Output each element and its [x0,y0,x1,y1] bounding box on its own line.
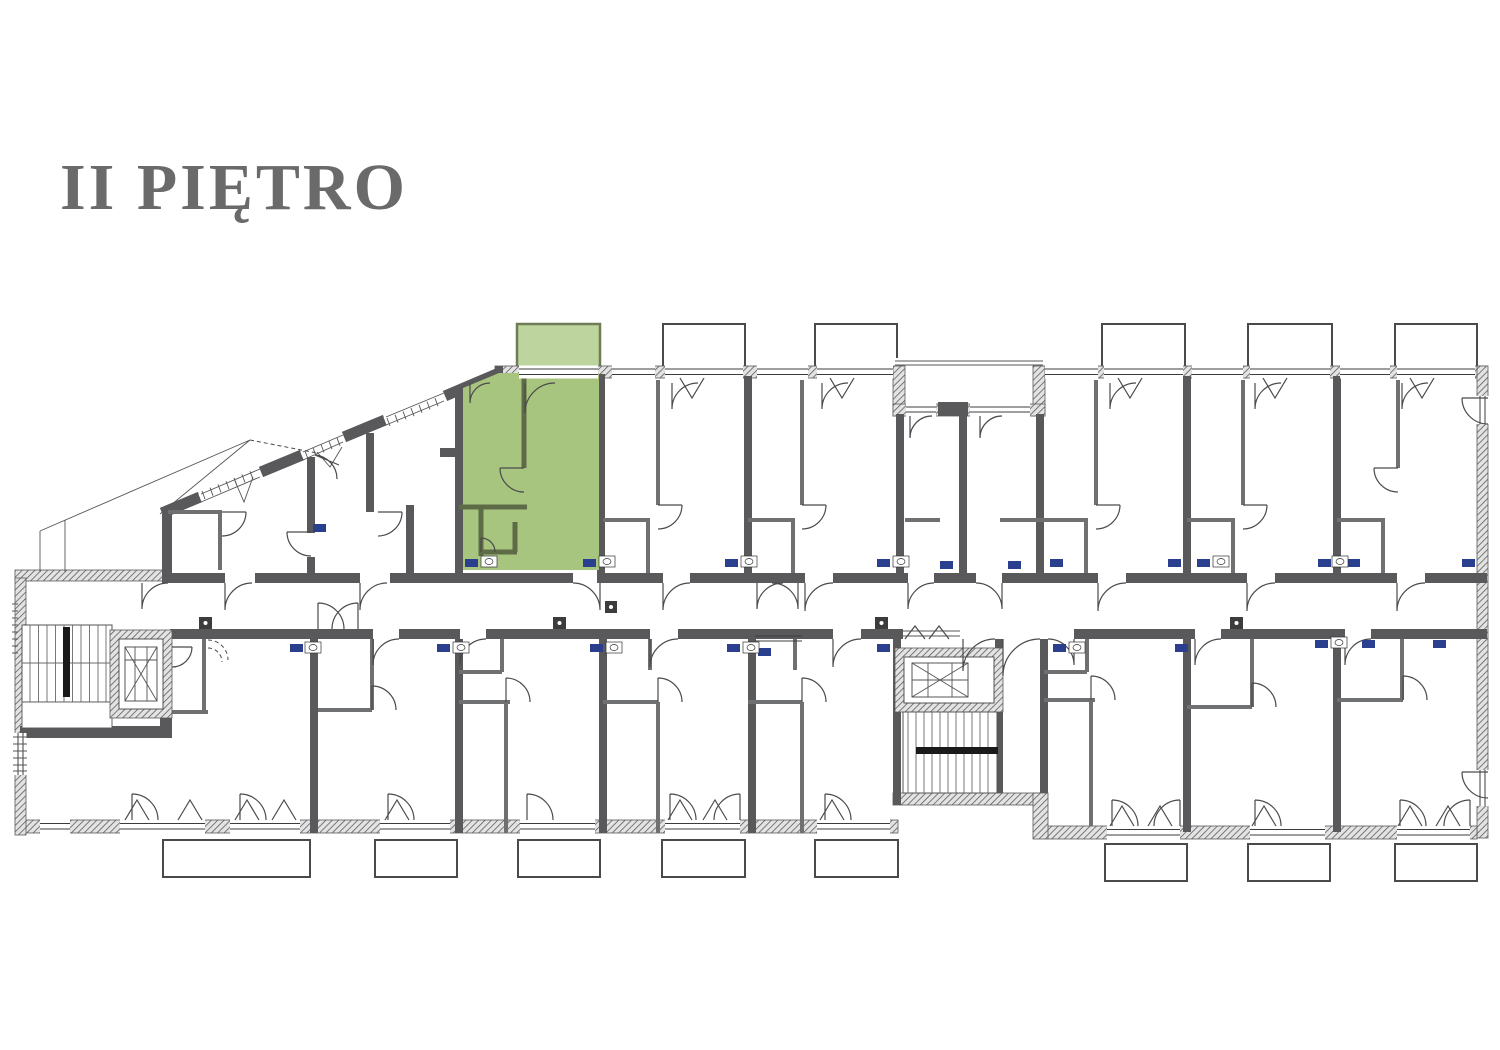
apartment-unit-top-9[interactable] [1341,378,1477,573]
apartment-unit-top-1[interactable] [170,440,307,573]
apartment-unit-bottom-2[interactable] [318,639,455,820]
apartment-unit-top-8[interactable] [1191,378,1333,573]
balconies-bottom [163,840,1477,881]
apartment-unit-top-5[interactable] [904,416,959,573]
apartment-unit-top-7[interactable] [1044,378,1183,573]
electrical-boxes [199,601,1243,629]
apartment-unit-bottom-6[interactable] [1048,639,1183,826]
floor-plan-drawing [0,0,1500,1050]
elevator-middle [895,648,1003,712]
highlighted-apartment[interactable] [459,373,599,570]
floor-plan-page: II PIĘTRO [0,0,1500,1050]
highlighted-balcony[interactable] [517,324,600,368]
apartment-unit-bottom-5[interactable] [756,639,893,820]
staircase-middle [903,712,998,793]
apartment-unit-top-3[interactable] [605,378,744,573]
apartment-unit-bottom-8[interactable] [1341,639,1477,826]
apartment-unit-top-4[interactable] [752,378,896,573]
apartment-unit-top-6[interactable] [967,416,1036,573]
loggia [893,358,1045,417]
apartment-unit-bottom-7[interactable] [1191,639,1333,826]
apartment-unit-bottom-3[interactable] [463,639,599,820]
apartment-unit-bottom-4[interactable] [607,639,748,820]
apartment-unit-top-2[interactable] [315,420,455,573]
apartment-unit-bottom-1[interactable] [26,639,310,820]
